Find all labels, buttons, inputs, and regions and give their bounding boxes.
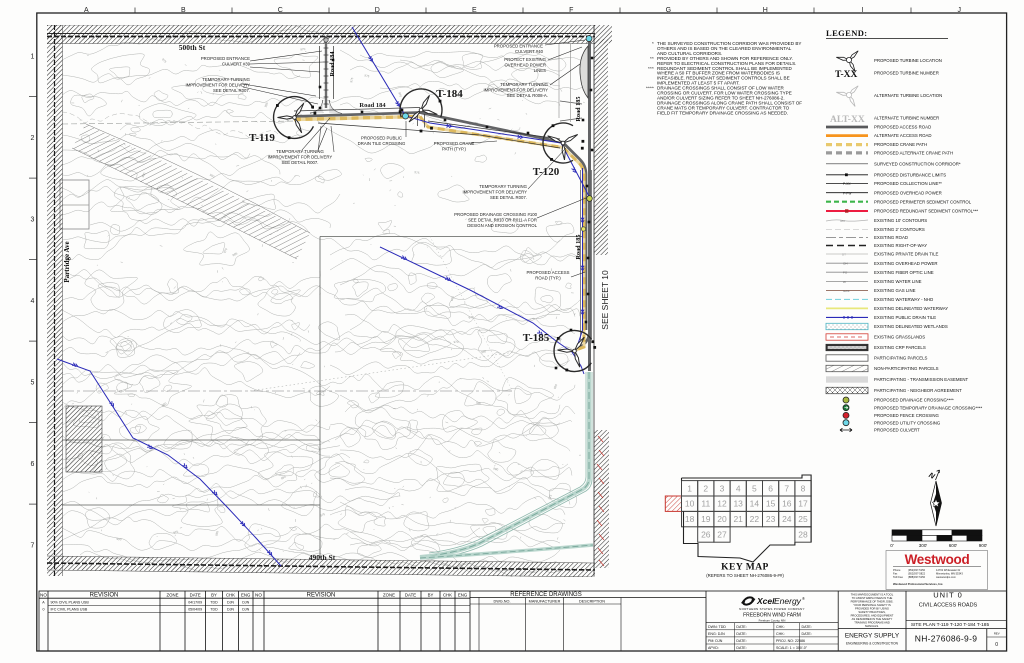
svg-text:EXISTING PUBLIC DRAIN TILE: EXISTING PUBLIC DRAIN TILE [874, 315, 936, 320]
svg-text:AS DESCRIBED IN THE SAFETY: AS DESCRIBED IN THE SAFETY [852, 617, 893, 621]
svg-text:G: G [666, 7, 671, 14]
svg-text:1: 1 [31, 53, 35, 60]
svg-text:17: 17 [798, 499, 808, 509]
svg-text:EXISTING GAS LINE: EXISTING GAS LINE [874, 288, 916, 293]
svg-text:J: J [958, 7, 962, 14]
svg-text:PROPOSED DRAINAGE CROSSING****: PROPOSED DRAINAGE CROSSING**** [874, 398, 954, 403]
svg-text:ALTERNATE TURBINE NUMBER: ALTERNATE TURBINE NUMBER [874, 116, 939, 121]
svg-text:***: *** [648, 66, 654, 71]
svg-text:Westwood Professional Services: Westwood Professional Services, Inc. [893, 582, 943, 586]
svg-text:PROPOSED FENCE CROSSING: PROPOSED FENCE CROSSING [874, 413, 940, 418]
svg-text:20: 20 [717, 514, 727, 524]
svg-text:PROPOSED PUBLICDRAIN TILE CROS: PROPOSED PUBLICDRAIN TILE CROSSING [358, 136, 406, 146]
svg-text:10: 10 [685, 499, 695, 509]
svg-text:DATE:: DATE: [736, 646, 746, 650]
svg-text:****: **** [646, 86, 654, 91]
svg-text:04/17/09: 04/17/09 [188, 600, 202, 604]
svg-text:PROPOSED CRANE PATH: PROPOSED CRANE PATH [874, 142, 927, 147]
svg-text:22: 22 [750, 514, 760, 524]
svg-text:4: 4 [31, 298, 35, 305]
svg-text:DJN: DJN [242, 600, 249, 604]
svg-text:12: 12 [717, 499, 727, 509]
svg-text:BY: BY [211, 592, 217, 597]
svg-text:NO: NO [255, 592, 262, 597]
svg-text:T-184: T-184 [436, 88, 463, 100]
svg-text:3: 3 [720, 483, 725, 493]
svg-text:DATE: DATE [190, 592, 201, 597]
svg-text:PROPOSED ACCESS ROAD: PROPOSED ACCESS ROAD [874, 125, 931, 130]
svg-text:TDD: TDD [210, 608, 218, 612]
svg-text:B: B [181, 7, 186, 14]
svg-text:T-XX: T-XX [835, 70, 857, 80]
svg-text:5: 5 [752, 483, 757, 493]
svg-text:11: 11 [701, 499, 710, 509]
svg-text:14: 14 [750, 499, 760, 509]
svg-text:NO: NO [40, 592, 47, 597]
svg-text:600': 600' [949, 543, 958, 548]
svg-text:T-120: T-120 [533, 166, 560, 178]
svg-text:DATE:: DATE: [736, 632, 746, 636]
svg-text:500th St: 500th St [179, 43, 206, 52]
svg-text:26: 26 [701, 530, 711, 540]
svg-text:MANUALS.: MANUALS. [865, 624, 879, 628]
svg-text:MANUFACTURER: MANUFACTURER [529, 600, 561, 604]
svg-text:PROPOSED UTILITY CROSSING: PROPOSED UTILITY CROSSING [874, 420, 941, 425]
svg-text:NORTHERN STATES POWER COMPANY: NORTHERN STATES POWER COMPANY [739, 607, 805, 611]
svg-text:NH-276086-9-9: NH-276086-9-9 [915, 634, 978, 644]
svg-text:PROPOSED CULVERT: PROPOSED CULVERT [874, 428, 920, 433]
svg-text:6: 6 [31, 461, 35, 468]
svg-text:DESCRIPTION: DESCRIPTION [579, 600, 605, 604]
svg-text:DATE:: DATE: [802, 625, 812, 629]
svg-text:0': 0' [890, 543, 894, 548]
svg-text:ENG: ENG [458, 592, 468, 597]
svg-text:ALT-XX: ALT-XX [830, 115, 865, 125]
svg-text:I: I [861, 7, 863, 14]
svg-text:Road 184: Road 184 [329, 52, 336, 77]
svg-text:DATE:: DATE: [736, 625, 746, 629]
svg-text:Westwood: Westwood [905, 552, 970, 567]
svg-text:ENG: ENG [241, 592, 251, 597]
svg-text:1: 1 [687, 483, 692, 493]
svg-text:Xcel: Xcel [756, 596, 775, 606]
svg-text:PROPOSED COLLECTION LINE**: PROPOSED COLLECTION LINE** [874, 181, 942, 186]
svg-text:2: 2 [703, 483, 708, 493]
svg-text:REVISION: REVISION [307, 593, 336, 599]
svg-text:Road 185: Road 185 [575, 97, 582, 122]
svg-text:YOUR PERSONAL SAFETY IS: YOUR PERSONAL SAFETY IS [853, 603, 891, 607]
svg-text:28: 28 [798, 530, 808, 540]
svg-text:EXISTING DELINEATED WATERWAY: EXISTING DELINEATED WATERWAY [874, 306, 948, 311]
svg-text:KEY MAP: KEY MAP [721, 563, 769, 573]
svg-text:EXISTING DELINEATED WETLANDS: EXISTING DELINEATED WETLANDS [874, 324, 948, 329]
svg-text:(888)937-5150: (888)937-5150 [908, 575, 926, 579]
svg-text:W: W [843, 280, 846, 284]
svg-text:Road 184: Road 184 [359, 102, 386, 109]
svg-text:EXISTING FIBER OPTIC LINE: EXISTING FIBER OPTIC LINE [874, 270, 934, 275]
svg-text:PROCEDURES, AND EQUIPMENT: PROCEDURES, AND EQUIPMENT [851, 614, 894, 618]
svg-text:**: ** [650, 56, 654, 61]
svg-text:CHK:: CHK: [776, 632, 785, 636]
svg-text:C: C [278, 7, 283, 14]
svg-text:LEGEND:: LEGEND: [826, 28, 868, 38]
svg-text:PROJ. NO: 22586: PROJ. NO: 22586 [776, 639, 805, 643]
svg-text:23: 23 [766, 514, 776, 524]
svg-text:®: ® [802, 596, 805, 601]
svg-text:PM: DJN: PM: DJN [708, 639, 723, 643]
svg-text:Energy: Energy [774, 596, 802, 606]
svg-text:ENERGY SUPPLY: ENERGY SUPPLY [845, 633, 900, 640]
svg-text:THIS MAP/DOCUMENT IS A TOOL: THIS MAP/DOCUMENT IS A TOOL [851, 593, 894, 597]
svg-text:TO ASSIST EMPLOYEES IN THE: TO ASSIST EMPLOYEES IN THE [852, 596, 893, 600]
svg-text:FIELD FIT TEMPORARY DRAINAGE C: FIELD FIT TEMPORARY DRAINAGE CROSSING AS… [657, 110, 788, 115]
svg-text:0: 0 [995, 642, 998, 648]
svg-text:18: 18 [685, 514, 695, 524]
svg-text:F: F [569, 7, 573, 14]
svg-text:(REFERS TO SHEET NH-276086-9-#: (REFERS TO SHEET NH-276086-9-##) [706, 573, 784, 578]
svg-text:TRAINING PROGRAMS AND: TRAINING PROGRAMS AND [854, 621, 890, 625]
svg-text:FO: FO [843, 271, 848, 275]
svg-text:REFERENCE DRAWINGS: REFERENCE DRAWINGS [510, 592, 581, 598]
svg-text:EXISTING RIGHT-OF-WAY: EXISTING RIGHT-OF-WAY [874, 243, 927, 248]
svg-text:DWN: TDD: DWN: TDD [708, 625, 726, 629]
svg-text:EXISTING GRASSLANDS: EXISTING GRASSLANDS [874, 335, 925, 340]
svg-text:TDD: TDD [210, 600, 218, 604]
svg-text:PROPOSED OVERHEAD POWER: PROPOSED OVERHEAD POWER [874, 190, 942, 195]
svg-text:IFC CIVIL PLANS USB: IFC CIVIL PLANS USB [51, 608, 88, 612]
svg-text:PROVIDED FOR BY USING: PROVIDED FOR BY USING [855, 607, 889, 611]
svg-text:ENGINEERING & CONSTRUCTION: ENGINEERING & CONSTRUCTION [846, 642, 899, 646]
svg-text:7: 7 [784, 483, 789, 493]
svg-text:DJN: DJN [227, 608, 234, 612]
svg-text:DATE:: DATE: [802, 632, 812, 636]
svg-text:P-PW: P-PW [843, 191, 851, 195]
svg-text:19: 19 [701, 514, 711, 524]
svg-text:PROPOSED DISTURBANCE LIMITS: PROPOSED DISTURBANCE LIMITS [874, 172, 946, 177]
svg-text:PARTICIPATING - TRANSMISSION E: PARTICIPATING - TRANSMISSION EASEMENT [874, 377, 969, 382]
svg-text:ENG: DJN: ENG: DJN [708, 632, 725, 636]
svg-text:E: E [472, 7, 477, 14]
svg-text:EXISTING 10' CONTOURS: EXISTING 10' CONTOURS [874, 218, 927, 223]
svg-text:Minnetonka, MN 55343: Minnetonka, MN 55343 [936, 572, 963, 576]
svg-text:PARTICIPATING - NEIGHBOR AGREE: PARTICIPATING - NEIGHBOR AGREEMENT [874, 388, 962, 393]
svg-text:NON-PARTICIPATING PARCELS: NON-PARTICIPATING PARCELS [874, 366, 939, 371]
svg-text:90% CIVIL PLANS USB: 90% CIVIL PLANS USB [51, 600, 90, 604]
svg-text:CHK: CHK [226, 592, 235, 597]
svg-text:990: 990 [116, 537, 122, 542]
svg-text:OH: OH [843, 262, 848, 266]
svg-text:EXISTING WATERWAY - NHD: EXISTING WATERWAY - NHD [874, 297, 933, 302]
svg-text:DT: DT [842, 253, 846, 257]
svg-text:ALTERNATE ACCESS ROAD: ALTERNATE ACCESS ROAD [874, 133, 932, 138]
svg-text:Fax: Fax [893, 572, 898, 576]
svg-text:980: 980 [840, 219, 845, 223]
svg-text:westwoodps.com: westwoodps.com [936, 575, 956, 579]
svg-text:PROPOSED PERIMETER SEDIMENT CO: PROPOSED PERIMETER SEDIMENT CONTROL [874, 199, 972, 204]
svg-text:DATE:: DATE: [736, 639, 746, 643]
svg-text:EXISTING ROAD: EXISTING ROAD [874, 235, 908, 240]
svg-text:DJN: DJN [227, 600, 234, 604]
svg-text:490th St: 490th St [309, 553, 336, 562]
svg-text:ALTERNATE TURBINE LOCATION: ALTERNATE TURBINE LOCATION [874, 93, 942, 98]
svg-text:15: 15 [766, 499, 776, 509]
svg-text:PARTICIPATING PARCELS: PARTICIPATING PARCELS [874, 356, 928, 361]
svg-text:A: A [84, 7, 89, 14]
svg-text:EXISTING CRP PARCELS: EXISTING CRP PARCELS [874, 345, 926, 350]
svg-text:(952)937-5822: (952)937-5822 [908, 572, 926, 576]
svg-text:GAS: GAS [843, 289, 849, 293]
svg-text:8: 8 [801, 483, 806, 493]
svg-text:EXISTING OVERHEAD POWER: EXISTING OVERHEAD POWER [874, 261, 937, 266]
svg-text:CHK: CHK [443, 592, 452, 597]
svg-text:REV: REV [994, 632, 1000, 636]
svg-text:REVISION: REVISION [90, 593, 119, 599]
svg-text:05/04/09: 05/04/09 [188, 608, 202, 612]
svg-text:H: H [763, 7, 768, 14]
svg-text:970: 970 [300, 47, 306, 52]
svg-text:DJN: DJN [242, 608, 249, 612]
svg-text:BY: BY [428, 592, 434, 597]
svg-text:300': 300' [919, 543, 928, 548]
svg-text:Freeborn County, MN: Freeborn County, MN [759, 618, 786, 622]
svg-text:APVD:: APVD: [708, 646, 719, 650]
svg-text:2: 2 [31, 135, 35, 142]
svg-text:SCALE: 1 = 300'-0": SCALE: 1 = 300'-0" [776, 646, 808, 650]
svg-text:PROPOSED TURBINE LOCATION: PROPOSED TURBINE LOCATION [874, 58, 942, 63]
svg-text:3: 3 [31, 216, 35, 223]
svg-text:*: * [652, 41, 654, 46]
svg-text:CIVIL ACCESS ROADS: CIVIL ACCESS ROADS [919, 603, 978, 609]
svg-text:13: 13 [733, 499, 743, 509]
svg-text:D: D [375, 7, 380, 14]
svg-text:T-119: T-119 [249, 132, 275, 144]
svg-text:PROPOSED TEMPORARY DRAINAGE CR: PROPOSED TEMPORARY DRAINAGE CROSSING**** [874, 405, 982, 410]
svg-text:EXISTING 2' CONTOURS: EXISTING 2' CONTOURS [874, 227, 925, 232]
svg-text:EXISTING PRIVATE DRAIN TILE: EXISTING PRIVATE DRAIN TILE [874, 252, 939, 257]
svg-text:970: 970 [454, 340, 459, 344]
svg-text:SURVEYED CONSTRUCTION CORRIDOR: SURVEYED CONSTRUCTION CORRIDOR* [874, 161, 961, 166]
svg-text:T-185: T-185 [523, 332, 550, 344]
svg-text:SEE SHEET 10: SEE SHEET 10 [600, 270, 610, 330]
svg-text:0: 0 [43, 608, 45, 612]
svg-text:4: 4 [736, 483, 741, 493]
svg-text:SAFETY PRACTICES,: SAFETY PRACTICES, [858, 610, 886, 614]
svg-text:ZONE: ZONE [383, 592, 395, 597]
svg-text:PROPOSED ALTERNATE CRANE PATH: PROPOSED ALTERNATE CRANE PATH [874, 151, 953, 156]
svg-text:24: 24 [782, 514, 792, 524]
svg-text:PROPOSED TURBINE NUMBER: PROPOSED TURBINE NUMBER [874, 71, 939, 76]
svg-text:975: 975 [414, 170, 420, 175]
svg-text:DWG.NO.: DWG.NO. [493, 600, 510, 604]
svg-text:(952)937-5150: (952)937-5150 [908, 568, 926, 572]
svg-text:27: 27 [717, 530, 727, 540]
svg-text:Phone: Phone [893, 568, 901, 572]
svg-text:CHK:: CHK: [776, 625, 785, 629]
svg-text:DATE: DATE [405, 592, 416, 597]
svg-text:25: 25 [798, 514, 808, 524]
svg-text:12701 Whitewater Dr: 12701 Whitewater Dr [936, 568, 960, 572]
svg-text:16: 16 [782, 499, 792, 509]
svg-text:Road 185: Road 185 [575, 235, 582, 260]
svg-text:5: 5 [31, 379, 35, 386]
svg-text:P-XX: P-XX [843, 182, 851, 186]
svg-text:Partridge Ave: Partridge Ave [63, 241, 71, 282]
svg-text:SITE PLAN T-119 T-120 T-184 T-: SITE PLAN T-119 T-120 T-184 T-185 [911, 622, 990, 628]
svg-text:21: 21 [733, 514, 743, 524]
svg-text:6: 6 [768, 483, 773, 493]
svg-text:Toll Free: Toll Free [893, 575, 904, 579]
svg-text:7: 7 [31, 542, 35, 549]
svg-text:EXISTING WATER LINE: EXISTING WATER LINE [874, 279, 922, 284]
svg-text:PERFORMANCE OF THEIR JOBS.: PERFORMANCE OF THEIR JOBS. [851, 600, 894, 604]
svg-text:ZONE: ZONE [167, 592, 179, 597]
svg-text:900': 900' [979, 543, 988, 548]
svg-text:UNIT 0: UNIT 0 [933, 591, 963, 600]
svg-text:PROPOSED REDUNDANT SEDIMENT CO: PROPOSED REDUNDANT SEDIMENT CONTROL*** [874, 209, 978, 214]
